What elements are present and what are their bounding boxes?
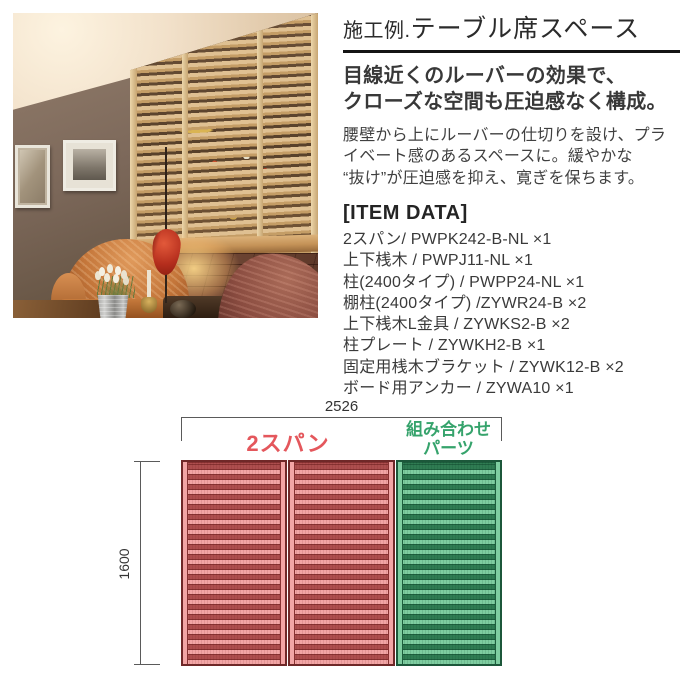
lamp-pole xyxy=(165,147,167,303)
subtitle-line: クローズな空間も圧迫感なく構成。 xyxy=(343,89,680,115)
panel-post xyxy=(398,462,403,664)
flower-bucket xyxy=(96,295,130,318)
title-underline xyxy=(343,50,680,53)
picture-frame xyxy=(63,140,116,191)
candle xyxy=(147,270,151,298)
item-row: 柱(2400タイプ) / PWPP24-NL ×1 xyxy=(343,272,680,293)
width-dimension-line xyxy=(181,417,502,418)
tulip-stems xyxy=(97,276,135,298)
page-title: 施工例. テーブル席スペース xyxy=(343,9,680,45)
subtitle: 目線近くのルーバーの効果で、 クローズな空間も圧迫感なく構成。 xyxy=(343,63,680,116)
item-row: 上下桟木 / PWPJ11-NL ×1 xyxy=(343,250,680,271)
body-line: “抜け”が圧迫感を抑え、寛ぎを保ちます。 xyxy=(343,168,680,189)
tulip-flowers xyxy=(99,267,105,276)
panel-post xyxy=(388,462,393,664)
panel-post xyxy=(183,462,188,664)
dimension-diagram: 2526 2スパン 組み合わせ パーツ 1600 xyxy=(0,390,680,680)
combination-parts-label: 組み合わせ パーツ xyxy=(395,420,502,458)
dimension-tick xyxy=(134,664,160,665)
louver-panel-green xyxy=(396,460,502,666)
framed-art xyxy=(73,149,106,180)
louver-panel-red xyxy=(288,460,394,666)
item-list: 2スパン/ PWPK242-B-NL ×1 上下桟木 / PWPJ11-NL ×… xyxy=(343,229,680,399)
title-main: テーブル席スペース xyxy=(411,9,641,45)
framed-art xyxy=(20,150,45,203)
span-label-red: 2スパン xyxy=(181,426,395,458)
dimension-tick xyxy=(134,461,160,462)
louver-post xyxy=(311,13,318,262)
combination-parts-label-line: パーツ xyxy=(395,439,502,458)
item-row: 柱プレート / ZYWKH2-B ×1 xyxy=(343,335,680,356)
item-row: 棚柱(2400タイプ) /ZYWR24-B ×2 xyxy=(343,293,680,314)
body-line: イベート感のあるスペースに。緩やかな xyxy=(343,146,680,167)
combination-parts-label-line: 組み合わせ xyxy=(395,420,502,439)
height-dimension-label: 1600 xyxy=(116,544,132,584)
installation-photo xyxy=(13,13,318,318)
width-dimension-label: 2526 xyxy=(181,398,502,415)
maroon-sofa xyxy=(211,243,318,318)
item-row: 2スパン/ PWPK242-B-NL ×1 xyxy=(343,229,680,250)
article-column: 施工例. テーブル席スペース 目線近くのルーバーの効果で、 クローズな空間も圧迫… xyxy=(343,9,680,399)
wood-table xyxy=(13,300,109,318)
picture-frame xyxy=(15,145,50,208)
item-data-heading: [ITEM DATA] xyxy=(343,202,680,225)
item-row: 固定用桟木ブラケット / ZYWK12-B ×2 xyxy=(343,357,680,378)
panel-post xyxy=(290,462,295,664)
subtitle-line: 目線近くのルーバーの効果で、 xyxy=(343,63,680,89)
panel-post xyxy=(495,462,500,664)
item-row: 上下桟木L金具 / ZYWKS2-B ×2 xyxy=(343,314,680,335)
louver-post xyxy=(257,13,263,262)
panel-post xyxy=(280,462,285,664)
body-line: 腰壁から上にルーバーの仕切りを設け、プラ xyxy=(343,125,680,146)
height-dimension-line xyxy=(140,461,141,665)
title-prefix: 施工例. xyxy=(343,14,411,43)
louver-panel-red xyxy=(181,460,287,666)
candle-holder xyxy=(141,297,157,313)
body-text: 腰壁から上にルーバーの仕切りを設け、プラ イベート感のあるスペースに。緩やかな … xyxy=(343,125,680,189)
sofa-back-cushion xyxy=(210,246,318,318)
glass-vase xyxy=(170,300,196,318)
panel-drawing xyxy=(181,460,502,666)
